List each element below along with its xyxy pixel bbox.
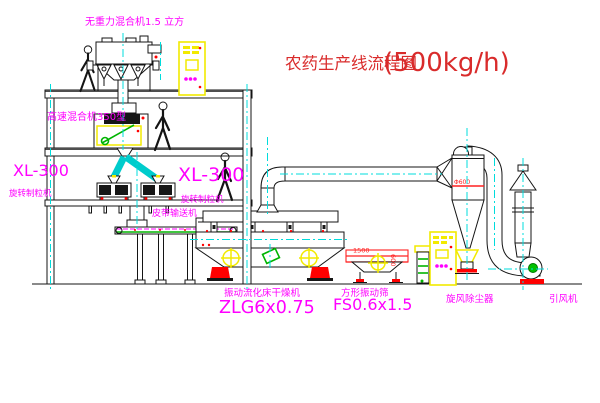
dryer-feet bbox=[207, 267, 333, 281]
gravity-free-mixer bbox=[87, 36, 161, 113]
label-belt-conveyor: 皮带输送机 bbox=[152, 207, 197, 219]
discharge-column bbox=[415, 246, 431, 283]
label-screen-model: FS0.6x1.5 bbox=[333, 295, 412, 314]
drawing-capacity: (500kg/h) bbox=[383, 48, 510, 78]
mixer-side-pipe bbox=[148, 45, 161, 53]
fan-base bbox=[520, 279, 544, 284]
label-high-speed-mixer: 高速混合机350型 bbox=[47, 110, 126, 123]
label-cyclone: 旋风除尘器 bbox=[446, 293, 494, 305]
duct-elbow bbox=[261, 167, 285, 188]
duct-transition bbox=[437, 158, 452, 188]
conveyor-legs bbox=[135, 234, 195, 284]
label-gravity-free-mixer: 无重力混合机1.5 立方 bbox=[85, 15, 184, 28]
label-granulator-right-name: 旋转制粒机 bbox=[181, 194, 224, 205]
label-granulator-left-name: 旋转制粒机 bbox=[9, 188, 52, 199]
label-granulator-right-model: XL-300 bbox=[178, 164, 244, 186]
cyclone-diameter-dim: Φ600 bbox=[454, 179, 470, 186]
label-fan: 引风机 bbox=[549, 293, 578, 305]
screen-width-dim: 600 bbox=[389, 254, 397, 266]
control-cabinet-right bbox=[430, 232, 456, 285]
control-cabinet-top bbox=[179, 42, 205, 95]
granulator-left bbox=[97, 175, 131, 200]
square-vibrating-screen: 1500 600 bbox=[346, 247, 408, 283]
dryer-hood bbox=[203, 211, 338, 222]
worker-second-floor bbox=[155, 102, 170, 150]
induced-draft-fan bbox=[520, 257, 544, 284]
mixer-body bbox=[96, 42, 152, 64]
label-granulator-left-model: XL-300 bbox=[13, 161, 69, 180]
screen-length-dim: 1500 bbox=[353, 247, 370, 255]
cyclone-barrel bbox=[452, 155, 484, 200]
drawing-surface: 1500 600 bbox=[0, 0, 600, 403]
fan-motor bbox=[529, 264, 538, 273]
label-dryer-model: ZLG6x0.75 bbox=[219, 298, 315, 318]
cad-flow-diagram: 1500 600 bbox=[0, 0, 600, 403]
granulator-right bbox=[141, 175, 175, 200]
